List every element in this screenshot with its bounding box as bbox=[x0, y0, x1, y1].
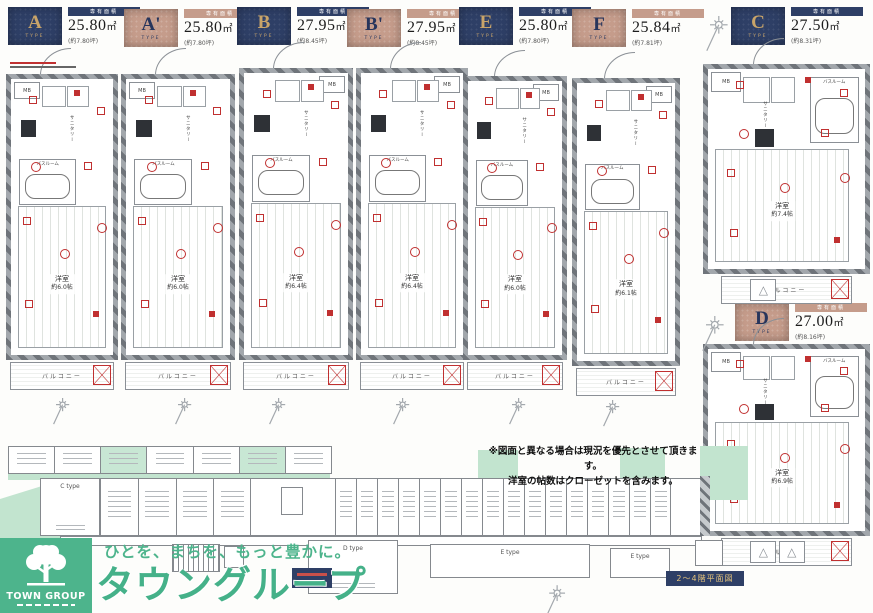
annotation-mark bbox=[805, 77, 811, 83]
annotation-mark bbox=[821, 129, 829, 137]
wall-hatch bbox=[700, 476, 710, 536]
annotation-mark bbox=[265, 158, 275, 168]
annotation-mark bbox=[487, 163, 497, 173]
floor-plan-C: MBサニタリーバスルーム洋室約7.4帖バルコニー△ bbox=[703, 64, 870, 304]
annotation-mark bbox=[526, 92, 532, 98]
room-size: 約6.1帖 bbox=[615, 290, 637, 298]
annotation-mark bbox=[479, 218, 487, 226]
type-badge-F: FTYPE専有面積25.84㎡(約7.81坪) bbox=[572, 9, 704, 47]
area-tsubo: (約7.81坪) bbox=[632, 38, 704, 47]
annotation-mark bbox=[659, 111, 667, 119]
notes: ※図面と異なる場合は現況を優先とさせて頂きます。 洋室の帖数はクローゼットを含み… bbox=[486, 444, 700, 489]
balcony-label: バルコニー bbox=[495, 372, 535, 381]
annotation-mark bbox=[821, 404, 829, 412]
annotation-mark bbox=[736, 81, 744, 89]
shower-box bbox=[254, 115, 270, 132]
fixture-box bbox=[771, 356, 795, 380]
type-badge-A: ATYPE専有面積25.80㎡(約7.80坪) bbox=[8, 7, 140, 45]
shower-box bbox=[371, 115, 386, 132]
area-caption: 専有面積 bbox=[795, 303, 867, 312]
type-letter: A' bbox=[142, 15, 161, 34]
annotation-mark bbox=[29, 96, 37, 104]
annotation-mark bbox=[381, 158, 391, 168]
unit-cell bbox=[399, 479, 420, 535]
floor-plan-E: MBサニタリーバスルーム洋室約6.0帖バルコニー bbox=[463, 76, 567, 390]
sanitary-label: サニタリー bbox=[184, 115, 190, 143]
unit-cell bbox=[357, 479, 378, 535]
room-size: 約6.4帖 bbox=[401, 283, 423, 291]
main-room: 洋室約7.4帖 bbox=[715, 149, 849, 262]
kitchen-box bbox=[496, 88, 519, 109]
balcony: バルコニー bbox=[10, 362, 114, 390]
annotation-mark bbox=[93, 311, 99, 317]
bathroom-label: バスルーム bbox=[811, 79, 858, 85]
annotation-mark bbox=[190, 90, 196, 96]
annotation-mark bbox=[331, 101, 339, 109]
plan-walls: MBサニタリーバスルーム洋室約6.0帖 bbox=[121, 74, 235, 360]
annotation-mark bbox=[294, 247, 304, 257]
type-letter: F bbox=[593, 15, 605, 34]
annotation-mark bbox=[145, 96, 153, 104]
annotation-mark bbox=[481, 300, 489, 308]
area-tsubo: (約8.31坪) bbox=[791, 36, 863, 45]
compass-icon bbox=[542, 578, 578, 613]
annotation-mark bbox=[331, 220, 341, 230]
room-label: 洋室約6.0帖 bbox=[49, 274, 75, 294]
compass-icon bbox=[506, 392, 536, 434]
fixture-box bbox=[771, 77, 795, 103]
red-annotation-box bbox=[93, 365, 111, 385]
type-letter: C bbox=[751, 13, 765, 32]
red-annotation-box bbox=[542, 365, 560, 385]
area-unit: ㎡ bbox=[671, 24, 682, 35]
bathroom: バスルーム bbox=[369, 155, 426, 202]
shower-box bbox=[21, 120, 36, 137]
vent-box: △ bbox=[779, 541, 805, 563]
bathroom: バスルーム bbox=[810, 77, 859, 143]
red-annotation-box bbox=[655, 371, 673, 391]
right-annex bbox=[695, 540, 723, 566]
elevator-box bbox=[281, 487, 303, 515]
annotation-mark bbox=[547, 108, 555, 116]
site-plan-badge: 2〜4階平面図 bbox=[666, 571, 744, 586]
floorplan-sheet: ATYPE専有面積25.80㎡(約7.80坪)A'TYPE専有面積25.80㎡(… bbox=[0, 0, 873, 613]
entrance-lobby bbox=[250, 478, 337, 536]
unit-cell bbox=[147, 447, 193, 473]
vent-box: △ bbox=[750, 279, 776, 301]
area-tsubo: (約8.16坪) bbox=[795, 332, 867, 341]
annotation-mark bbox=[213, 223, 223, 233]
area-unit: ㎡ bbox=[107, 22, 118, 33]
type-letter: A bbox=[28, 13, 42, 32]
sanitary-label: サニタリー bbox=[761, 101, 767, 129]
shower-box bbox=[587, 125, 602, 142]
unit-cell bbox=[101, 479, 139, 535]
balcony: バルコニー bbox=[360, 362, 464, 390]
type-word-label: TYPE bbox=[141, 36, 160, 41]
unit-cell bbox=[139, 479, 177, 535]
room-label: 洋室約6.1帖 bbox=[613, 280, 639, 300]
unit-row-left bbox=[100, 478, 252, 536]
kitchen-box bbox=[157, 86, 182, 107]
bathroom: バスルーム bbox=[252, 155, 310, 202]
town-group-logo: TOWN GROUP bbox=[0, 538, 92, 613]
annotation-mark bbox=[638, 94, 644, 100]
annotation-mark bbox=[840, 173, 850, 183]
annotation-mark bbox=[424, 84, 430, 90]
unit-cell bbox=[177, 479, 215, 535]
room-label: 洋室約6.4帖 bbox=[283, 273, 309, 293]
area-value: 27.00㎡ bbox=[795, 313, 867, 331]
floor-plan-A': MBサニタリーバスルーム洋室約6.0帖バルコニー bbox=[121, 74, 235, 390]
room-size: 約6.0帖 bbox=[51, 285, 73, 293]
room-size: 約6.4帖 bbox=[285, 283, 307, 291]
annotation-mark bbox=[727, 169, 735, 177]
annotation-mark bbox=[485, 97, 493, 105]
shower-box bbox=[755, 404, 774, 420]
balcony-label: バルコニー bbox=[606, 378, 646, 387]
plan-walls: MBサニタリーバスルーム洋室約6.4帖 bbox=[239, 68, 353, 360]
bathtub bbox=[258, 170, 304, 195]
type-badge-C: CTYPE専有面積27.50㎡(約8.31坪) bbox=[731, 7, 863, 45]
balcony: バルコニー△ bbox=[721, 276, 852, 304]
type-tile: ATYPE bbox=[8, 7, 62, 45]
unit-cell bbox=[101, 447, 147, 473]
floor-plan-A: MBサニタリーバスルーム洋室約6.0帖バルコニー bbox=[6, 74, 118, 390]
unit-type-label: C type bbox=[41, 483, 99, 490]
unit-cell bbox=[55, 447, 101, 473]
unit-cell bbox=[420, 479, 441, 535]
sanitary-label: サニタリー bbox=[521, 117, 527, 145]
main-room: 洋室約6.0帖 bbox=[18, 206, 106, 348]
annotation-mark bbox=[176, 249, 186, 259]
bathroom-label: バスルーム bbox=[135, 161, 191, 167]
floor-plan-B': MBサニタリーバスルーム洋室約6.4帖バルコニー bbox=[356, 68, 468, 390]
type-tile: ETYPE bbox=[459, 7, 513, 45]
note-line1: ※図面と異なる場合は現況を優先とさせて頂きます。 bbox=[486, 444, 700, 474]
bathroom: バスルーム bbox=[19, 159, 76, 205]
balcony-label: バルコニー bbox=[42, 372, 82, 381]
bathtub bbox=[375, 170, 420, 195]
floor-plan-F: MBサニタリーバスルーム洋室約6.1帖バルコニー bbox=[572, 78, 680, 396]
plan-walls: MBサニタリーバスルーム洋室約6.4帖 bbox=[356, 68, 468, 360]
room-label: 洋室約6.4帖 bbox=[399, 273, 425, 293]
plan-walls: MBサニタリーバスルーム洋室約6.1帖 bbox=[572, 78, 680, 366]
compass-icon bbox=[698, 308, 738, 362]
annotation-mark bbox=[739, 404, 749, 414]
door-arc bbox=[604, 52, 635, 79]
kitchen-box bbox=[743, 356, 770, 380]
annotation-mark bbox=[447, 220, 457, 230]
logo-area: TOWN GROUP ひとを、まちを、もっと豊かに。 タウングループ bbox=[0, 536, 400, 613]
shower-box bbox=[755, 129, 774, 147]
compass-icon bbox=[390, 392, 420, 434]
type-word-label: TYPE bbox=[364, 36, 383, 41]
bathroom: バスルーム bbox=[476, 160, 529, 206]
unit-text-lines bbox=[56, 522, 85, 530]
unit-cell bbox=[462, 479, 483, 535]
annotation-mark bbox=[543, 311, 549, 317]
annotation-mark bbox=[840, 444, 850, 454]
unit-type-label: E type bbox=[611, 553, 669, 560]
annotation-mark bbox=[597, 166, 607, 176]
bathroom: バスルーム bbox=[585, 164, 640, 210]
main-room: 洋室約6.0帖 bbox=[133, 206, 223, 348]
room-size: 約6.9帖 bbox=[771, 479, 793, 487]
balcony-label: バルコニー bbox=[158, 372, 198, 381]
shower-box bbox=[136, 120, 152, 137]
annotation-mark bbox=[547, 223, 557, 233]
bathroom-label: バスルーム bbox=[370, 157, 425, 163]
annotation-mark bbox=[513, 250, 523, 260]
kitchen-box bbox=[606, 90, 630, 111]
annotation-mark bbox=[213, 107, 221, 115]
annotation-mark bbox=[84, 162, 92, 170]
area-unit: ㎡ bbox=[336, 22, 347, 33]
annotation-mark bbox=[536, 163, 544, 171]
area-unit: ㎡ bbox=[446, 24, 457, 35]
annotation-mark bbox=[805, 356, 811, 362]
sanitary-label: サニタリー bbox=[761, 378, 767, 406]
annotation-mark bbox=[308, 84, 314, 90]
annotation-mark bbox=[780, 183, 790, 193]
area-number: 27.00 bbox=[795, 313, 834, 330]
sanitary-label: サニタリー bbox=[418, 110, 424, 138]
annotation-mark bbox=[739, 129, 749, 139]
area-number: 25.80 bbox=[184, 19, 223, 36]
red-annotation-box bbox=[831, 279, 849, 299]
annotation-mark bbox=[379, 90, 387, 98]
upper-room-band bbox=[8, 446, 332, 474]
balcony: バルコニー bbox=[467, 362, 563, 390]
bathroom-label: バスルーム bbox=[253, 157, 309, 163]
area-unit: ㎡ bbox=[223, 24, 234, 35]
area-unit: ㎡ bbox=[558, 22, 569, 33]
annotation-mark bbox=[780, 453, 790, 463]
bathroom: バスルーム bbox=[134, 159, 192, 205]
note-line2: 洋室の帖数はクローゼットを含みます。 bbox=[486, 474, 700, 489]
area-box: 専有面積27.00㎡(約8.16坪) bbox=[795, 303, 867, 341]
area-number: 27.50 bbox=[791, 17, 830, 34]
area-value: 25.84㎡ bbox=[632, 19, 704, 37]
kitchen-box bbox=[743, 77, 770, 103]
door-arc bbox=[155, 48, 186, 75]
annotation-mark bbox=[591, 305, 599, 313]
balcony-label: バルコニー bbox=[276, 372, 316, 381]
sanitary-label: サニタリー bbox=[68, 115, 74, 143]
main-room: 洋室約6.4帖 bbox=[251, 203, 341, 348]
annotation-mark bbox=[410, 247, 420, 257]
room-label: 洋室約6.0帖 bbox=[502, 275, 528, 295]
unit-cell bbox=[336, 479, 357, 535]
annotation-mark bbox=[375, 299, 383, 307]
annotation-mark bbox=[319, 158, 327, 166]
annotation-mark bbox=[373, 214, 381, 222]
room-label: 洋室約6.9帖 bbox=[769, 468, 795, 488]
bathtub bbox=[481, 175, 523, 200]
annotation-mark bbox=[23, 217, 31, 225]
annotation-mark bbox=[259, 299, 267, 307]
balcony-label: バルコニー bbox=[392, 372, 432, 381]
logo-brand: タウングループ bbox=[96, 554, 367, 609]
bathroom-label: バスルーム bbox=[20, 161, 75, 167]
bathtub bbox=[25, 174, 70, 199]
type-letter: E bbox=[480, 13, 493, 32]
compass-icon bbox=[702, 8, 742, 62]
unit-type-label: E type bbox=[431, 549, 589, 556]
type-tile: BTYPE bbox=[237, 7, 291, 45]
e-type-block: E type bbox=[610, 548, 670, 578]
annotation-mark bbox=[201, 162, 209, 170]
compass-icon bbox=[266, 392, 296, 434]
bathtub bbox=[140, 174, 186, 199]
area-number: 27.95 bbox=[407, 19, 446, 36]
kitchen-box bbox=[42, 86, 66, 107]
room-label: 洋室約7.4帖 bbox=[769, 201, 795, 221]
type-letter: B' bbox=[365, 15, 383, 34]
annotation-mark bbox=[655, 317, 661, 323]
annotation-mark bbox=[648, 166, 656, 174]
balcony: バルコニー bbox=[243, 362, 349, 390]
balcony: バルコニー bbox=[125, 362, 231, 390]
annotation-mark bbox=[659, 228, 669, 238]
door-arc bbox=[273, 42, 304, 69]
unit-cell bbox=[194, 447, 240, 473]
unit-cell bbox=[286, 447, 331, 473]
bathroom-label: バスルーム bbox=[477, 162, 528, 168]
door-arc bbox=[494, 50, 525, 77]
kitchen-box bbox=[275, 80, 300, 102]
annotation-mark bbox=[25, 300, 33, 308]
balcony: バルコニー bbox=[576, 368, 676, 396]
kitchen-box bbox=[392, 80, 416, 102]
area-unit: ㎡ bbox=[834, 318, 845, 329]
annotation-mark bbox=[434, 158, 442, 166]
annotation-mark bbox=[138, 217, 146, 225]
annotation-mark bbox=[730, 229, 738, 237]
main-room: 洋室約6.1帖 bbox=[584, 211, 668, 354]
type-word-label: TYPE bbox=[476, 34, 495, 39]
type-word-label: TYPE bbox=[748, 34, 767, 39]
plan-walls: MBサニタリーバスルーム洋室約7.4帖 bbox=[703, 64, 870, 274]
logo-mark-text: TOWN GROUP bbox=[6, 591, 85, 602]
red-annotation-box bbox=[328, 365, 346, 385]
red-annotation-box bbox=[831, 541, 849, 561]
type-tile: A'TYPE bbox=[124, 9, 178, 47]
main-room: 洋室約6.4帖 bbox=[368, 203, 456, 348]
type-tile: B'TYPE bbox=[347, 9, 401, 47]
annotation-mark bbox=[141, 300, 149, 308]
annotation-mark bbox=[74, 90, 80, 96]
bathroom-label: バスルーム bbox=[586, 165, 639, 171]
unit-cell-large: C type bbox=[40, 478, 100, 536]
room-size: 約6.0帖 bbox=[167, 285, 189, 293]
annotation-mark bbox=[447, 101, 455, 109]
area-caption: 専有面積 bbox=[632, 9, 704, 18]
room-size: 約6.0帖 bbox=[504, 285, 526, 293]
logo-tiny-line bbox=[17, 604, 75, 606]
red-annotation-box bbox=[443, 365, 461, 385]
micro-caption bbox=[10, 66, 76, 68]
annotation-mark bbox=[834, 502, 840, 508]
room-size: 約7.4帖 bbox=[771, 212, 793, 220]
annotation-mark bbox=[147, 162, 157, 172]
annotation-mark bbox=[595, 100, 603, 108]
bathroom: バスルーム bbox=[810, 356, 859, 416]
main-room: 洋室約6.0帖 bbox=[475, 207, 555, 348]
type-word-label: TYPE bbox=[254, 34, 273, 39]
red-annotation-box bbox=[210, 365, 228, 385]
micro-caption bbox=[10, 62, 56, 64]
annotation-mark bbox=[624, 254, 634, 264]
annotation-mark bbox=[840, 367, 848, 375]
type-tile: FTYPE bbox=[572, 9, 626, 47]
annotation-mark bbox=[834, 237, 840, 243]
compass-icon bbox=[172, 392, 202, 434]
room-label: 洋室約6.0帖 bbox=[165, 274, 191, 294]
tree-icon bbox=[15, 542, 77, 590]
compass-icon bbox=[600, 394, 630, 436]
annotation-mark bbox=[97, 107, 105, 115]
unit-cell bbox=[240, 447, 286, 473]
bathtub bbox=[591, 179, 634, 204]
plan-walls: MBサニタリーバスルーム洋室約6.0帖 bbox=[463, 76, 567, 360]
unit-cell bbox=[441, 479, 462, 535]
e-type-block: E type bbox=[430, 544, 590, 578]
compass-icon bbox=[50, 392, 80, 434]
unit-cell bbox=[214, 479, 251, 535]
annotation-mark bbox=[589, 222, 597, 230]
area-number: 25.84 bbox=[632, 19, 671, 36]
area-value: 27.50㎡ bbox=[791, 17, 863, 35]
unit-cell bbox=[378, 479, 399, 535]
annotation-mark bbox=[97, 223, 107, 233]
area-caption: 専有面積 bbox=[791, 7, 863, 16]
annotation-mark bbox=[840, 89, 848, 97]
annotation-mark bbox=[60, 249, 70, 259]
type-letter: B bbox=[258, 13, 271, 32]
area-box: 専有面積25.84㎡(約7.81坪) bbox=[632, 9, 704, 47]
annotation-mark bbox=[443, 310, 449, 316]
sanitary-label: サニタリー bbox=[302, 110, 308, 138]
annotation-mark bbox=[209, 311, 215, 317]
annotation-mark bbox=[256, 214, 264, 222]
type-word-label: TYPE bbox=[589, 36, 608, 41]
shower-box bbox=[477, 122, 491, 138]
area-box: 専有面積27.50㎡(約8.31坪) bbox=[791, 7, 863, 45]
area-unit: ㎡ bbox=[830, 22, 841, 33]
area-number: 25.80 bbox=[519, 17, 558, 34]
area-number: 25.80 bbox=[68, 17, 107, 34]
annotation-mark bbox=[263, 90, 271, 98]
sanitary-label: サニタリー bbox=[632, 119, 638, 147]
annotation-mark bbox=[327, 310, 333, 316]
bathroom-label: バスルーム bbox=[811, 358, 858, 364]
area-number: 27.95 bbox=[297, 17, 336, 34]
type-word-label: TYPE bbox=[25, 34, 44, 39]
floor-plan-B: MBサニタリーバスルーム洋室約6.4帖バルコニー bbox=[239, 68, 353, 390]
unit-cell bbox=[9, 447, 55, 473]
plan-walls: MBサニタリーバスルーム洋室約6.0帖 bbox=[6, 74, 118, 360]
